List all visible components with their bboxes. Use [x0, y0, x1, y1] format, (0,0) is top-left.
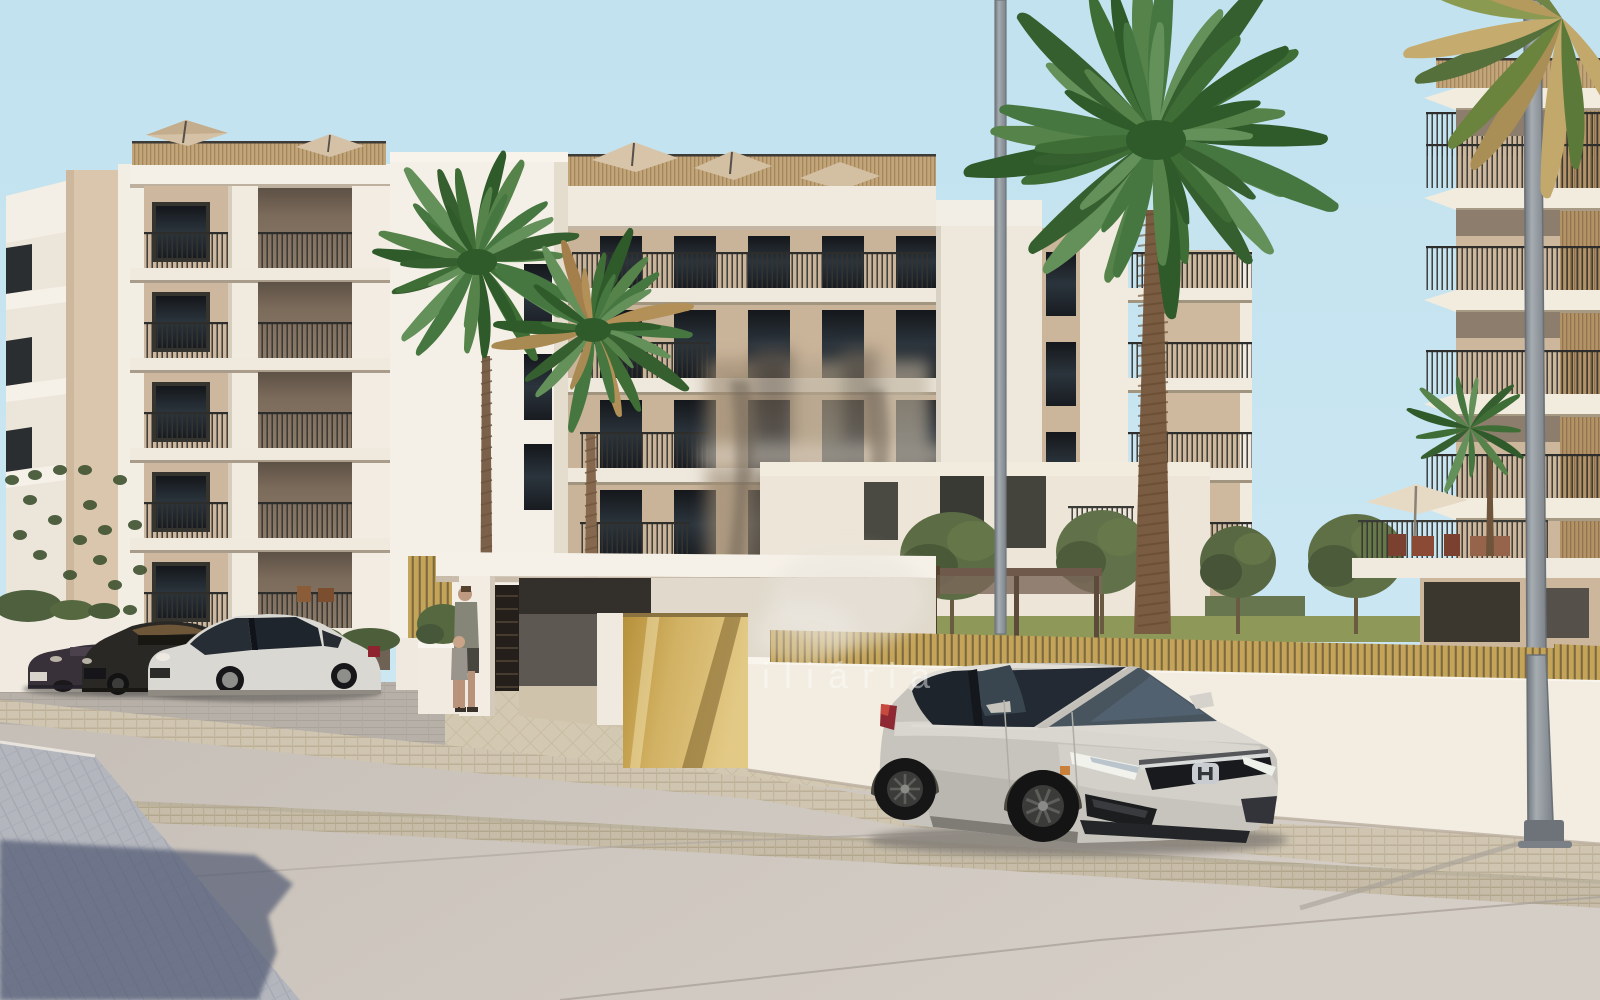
svg-text:iliária: iliária [762, 655, 944, 696]
